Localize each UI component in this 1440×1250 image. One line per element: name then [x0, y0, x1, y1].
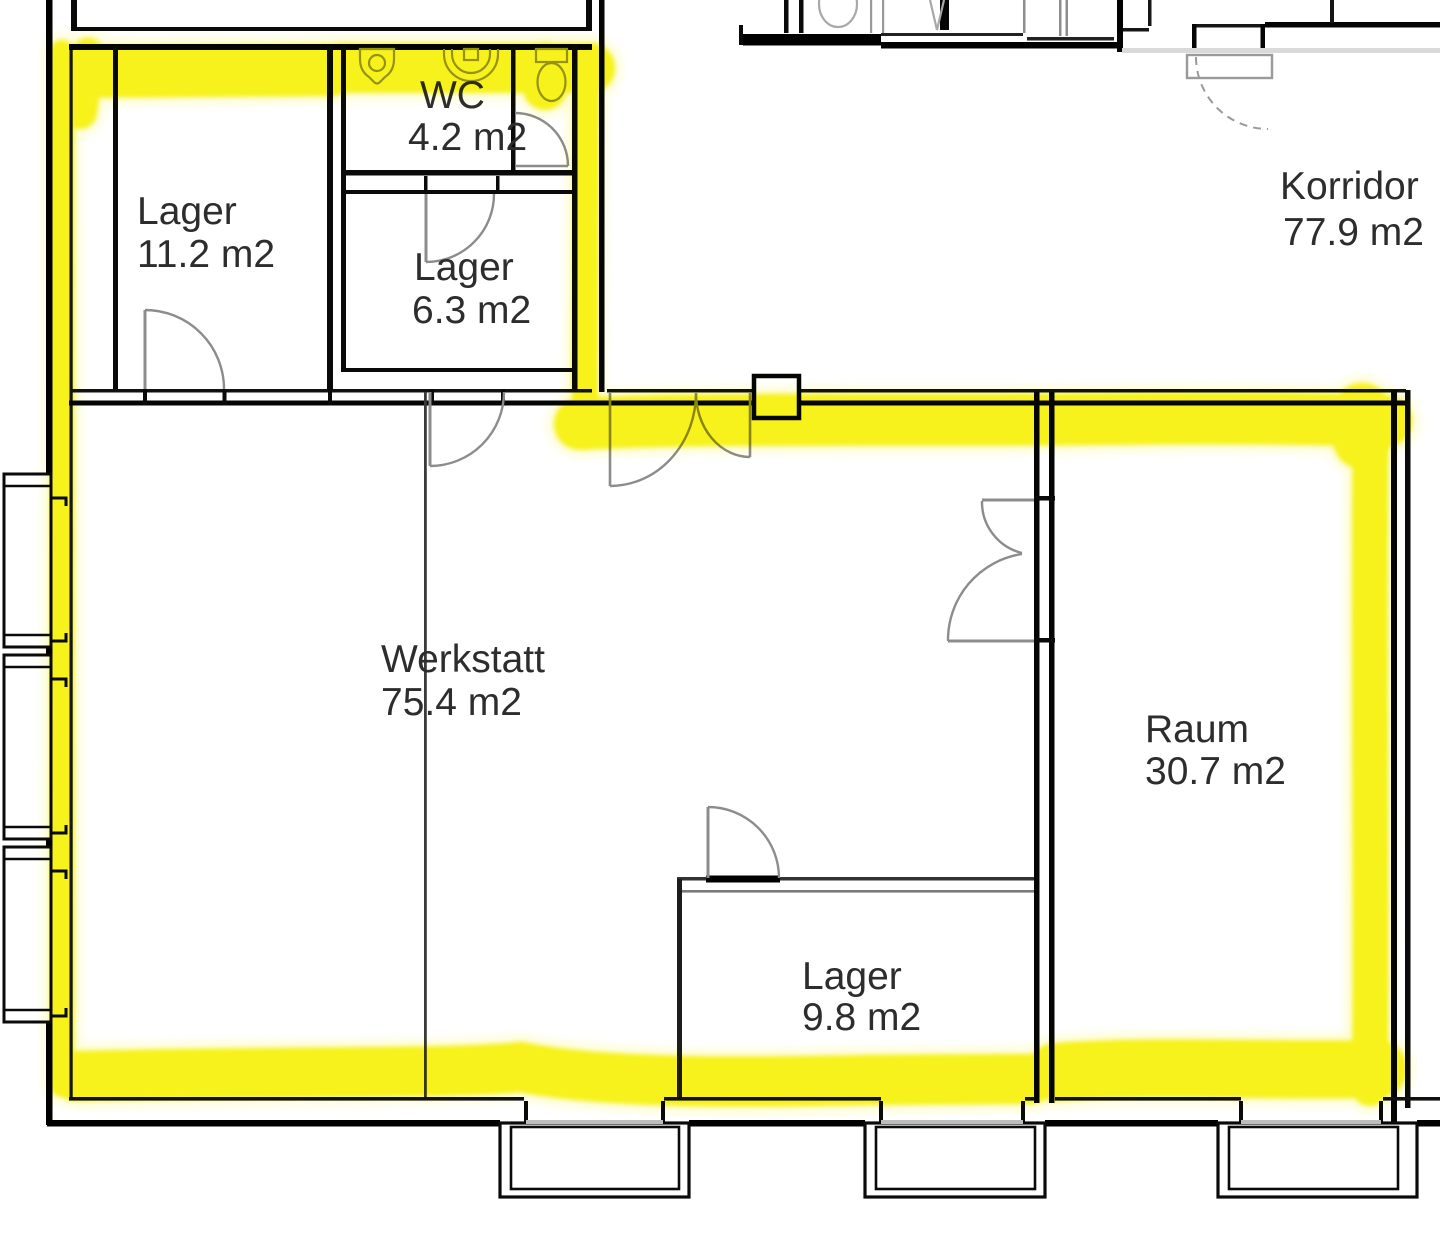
- svg-text:Lager: Lager: [414, 246, 514, 289]
- svg-text:9.8 m2: 9.8 m2: [802, 996, 921, 1039]
- svg-text:75.4 m2: 75.4 m2: [381, 681, 522, 724]
- svg-text:Lager: Lager: [802, 955, 902, 998]
- svg-text:Lager: Lager: [137, 190, 237, 233]
- svg-text:Werkstatt: Werkstatt: [381, 638, 545, 681]
- svg-text:4.2 m2: 4.2 m2: [408, 116, 527, 159]
- svg-text:11.2 m2: 11.2 m2: [137, 233, 275, 276]
- svg-text:6.3 m2: 6.3 m2: [412, 289, 531, 332]
- svg-text:77.9 m2: 77.9 m2: [1283, 211, 1424, 254]
- svg-text:30.7 m2: 30.7 m2: [1145, 750, 1286, 793]
- svg-text:Korridor: Korridor: [1280, 165, 1419, 208]
- svg-text:Raum: Raum: [1145, 708, 1249, 751]
